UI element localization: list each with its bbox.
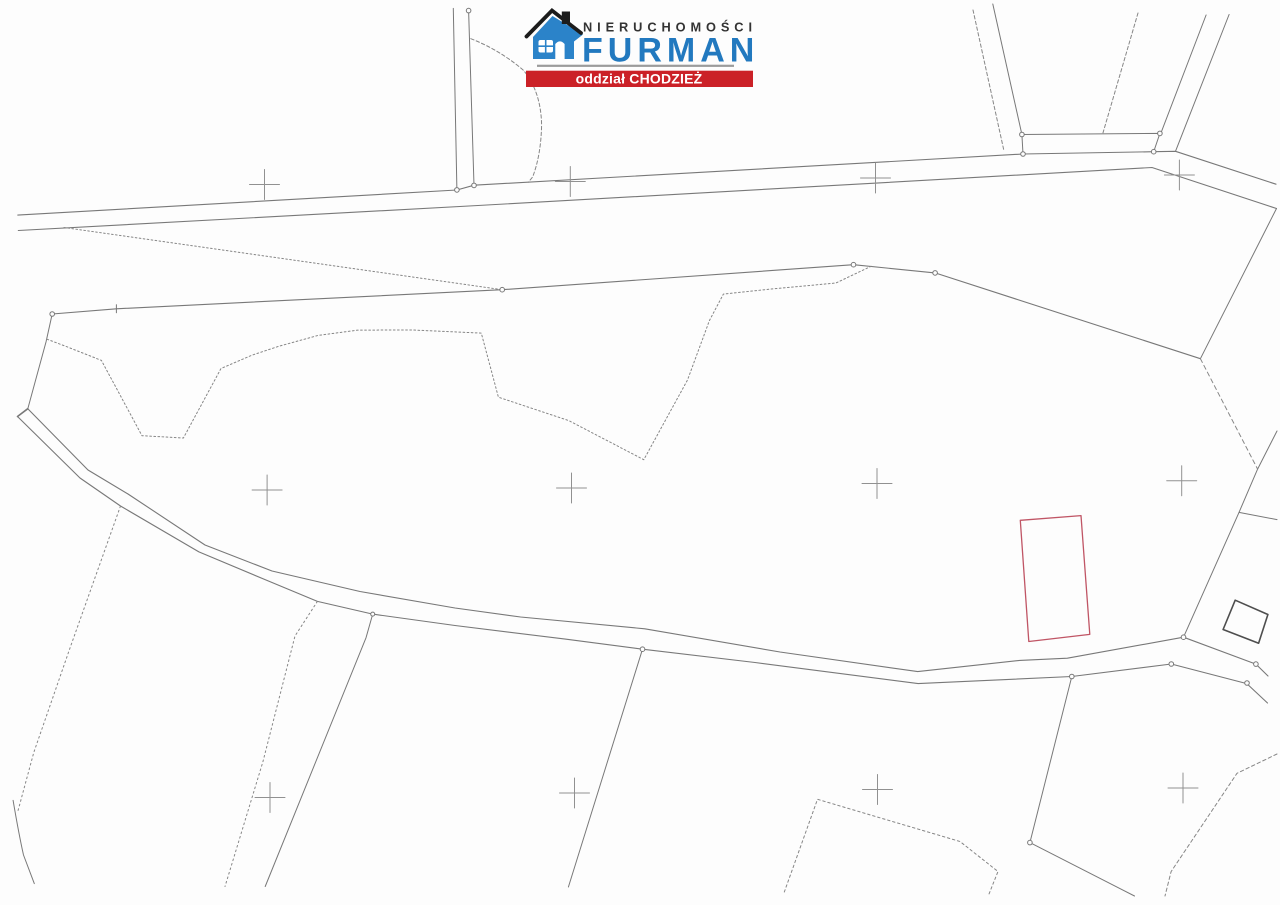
svg-text:oddział CHODZIEŻ: oddział CHODZIEŻ bbox=[576, 71, 703, 87]
svg-text:FURMAN: FURMAN bbox=[582, 32, 759, 70]
